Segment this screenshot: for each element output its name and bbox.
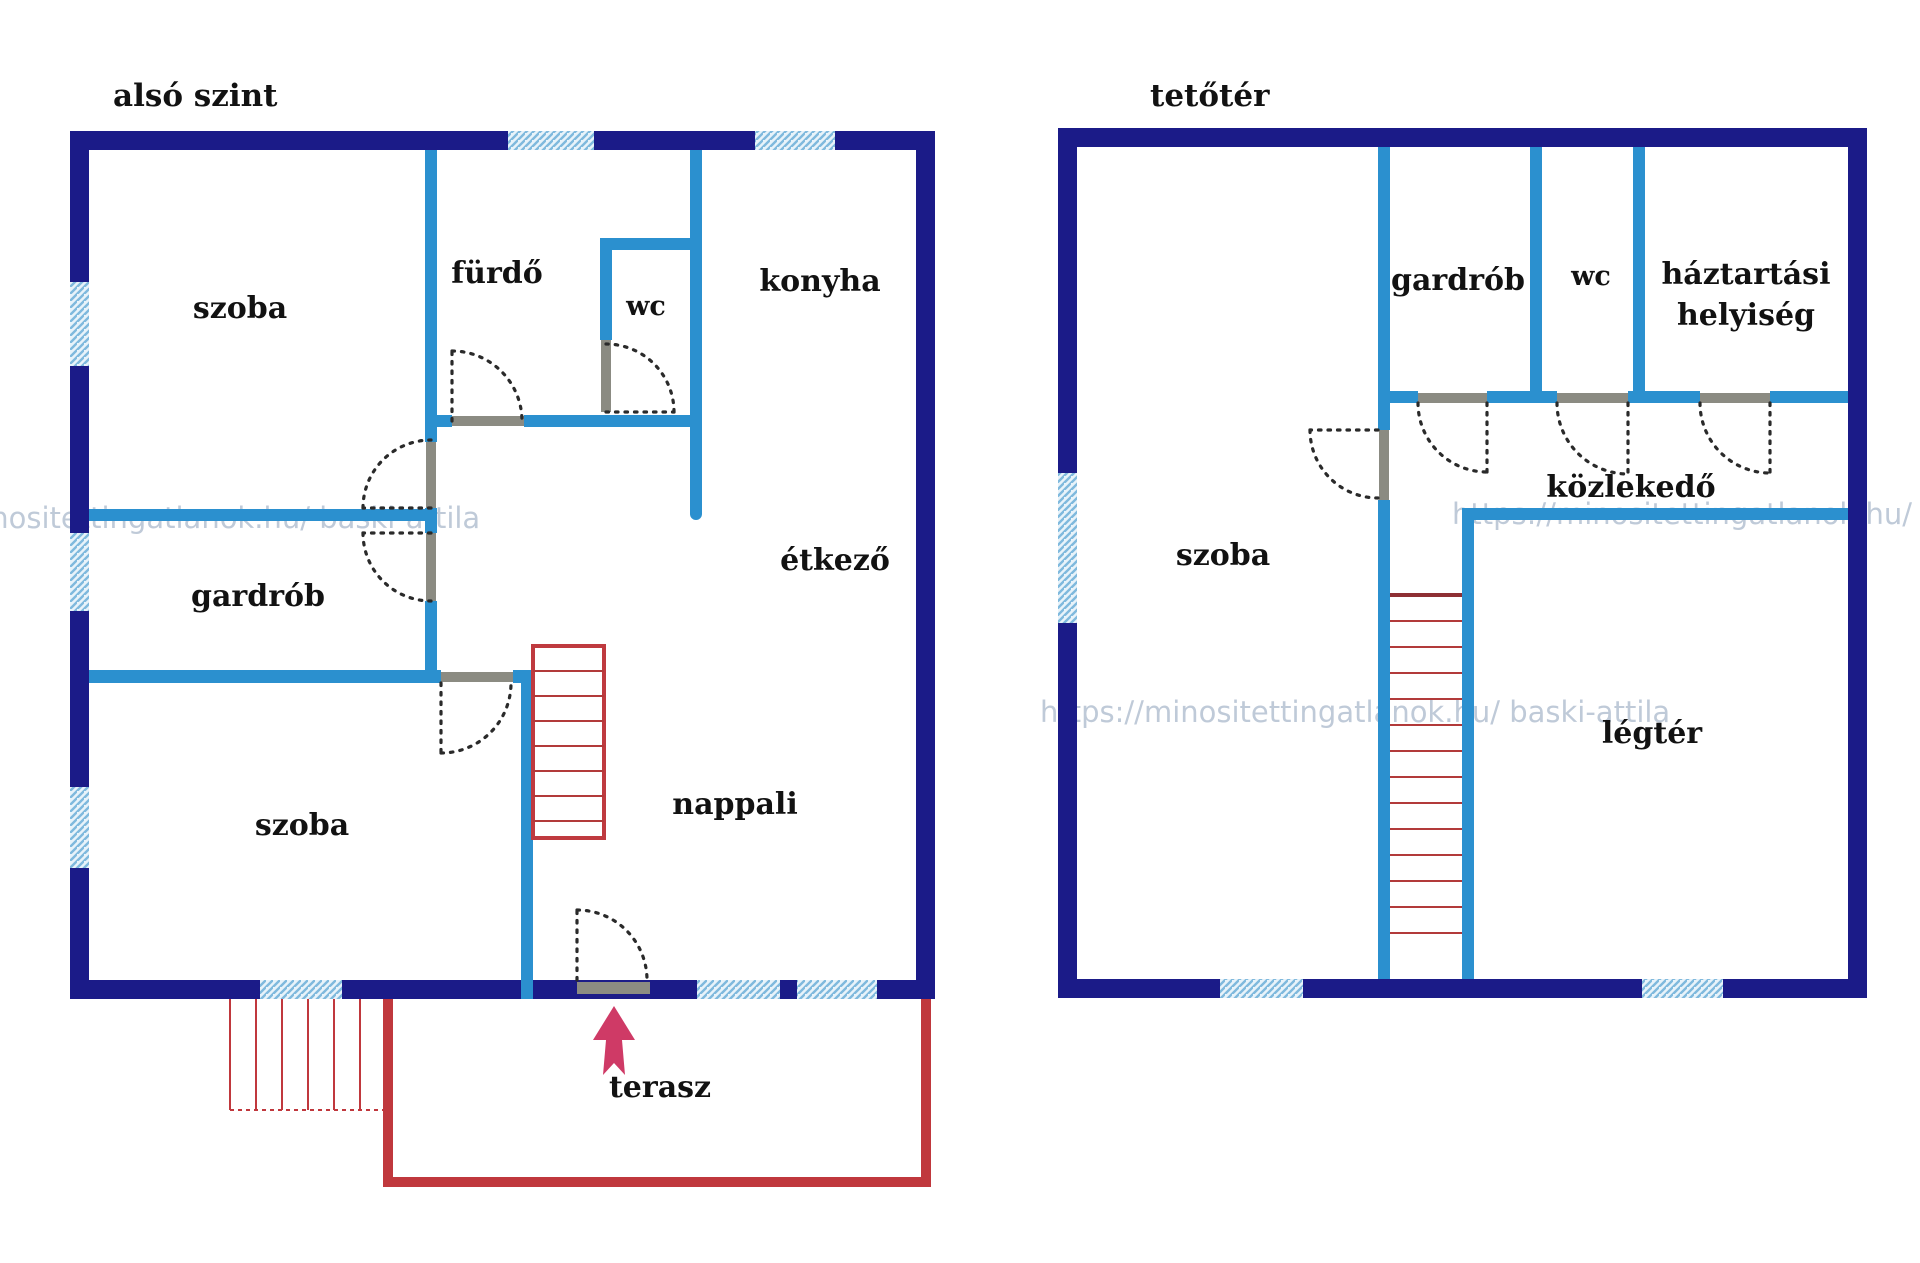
watermark-text: https://minositettingatlanok.hu/ baski-a… (1040, 695, 1670, 729)
room-label-szoba: szoba (1176, 538, 1270, 573)
room-label-kozlekedo: közlekedő (1546, 470, 1715, 505)
room-label-etkezo: étkező (780, 543, 890, 578)
attic-floor-title: tetőtér (1150, 78, 1270, 114)
floor-plan-canvas: https://minositettingatlanok.hu/ baski-a… (0, 0, 1920, 1263)
room-label-haztartasi: háztartási (1662, 257, 1831, 292)
room-label-gardrob: gardrób (1391, 263, 1525, 298)
room-label-wc: wc (1570, 261, 1611, 292)
floor-plan-page: https://minositettingatlanok.hu/ baski-a… (0, 0, 1920, 1263)
room-label-terasz: terasz (609, 1070, 711, 1105)
lower-floor-staircase (533, 646, 604, 838)
room-label-szoba-upper: szoba (193, 291, 287, 326)
room-label-gardrob: gardrób (191, 579, 325, 614)
room-label-helyiseg: helyiség (1677, 298, 1815, 333)
room-label-nappali: nappali (672, 787, 797, 822)
room-label-wc: wc (625, 291, 666, 322)
lower-floor-title: alsó szint (113, 78, 278, 114)
room-label-furdo: fürdő (451, 256, 543, 291)
room-label-szoba-lower: szoba (255, 808, 349, 843)
room-label-legter: légtér (1602, 716, 1703, 751)
page-background (0, 0, 1920, 1263)
room-label-konyha: konyha (759, 264, 880, 299)
